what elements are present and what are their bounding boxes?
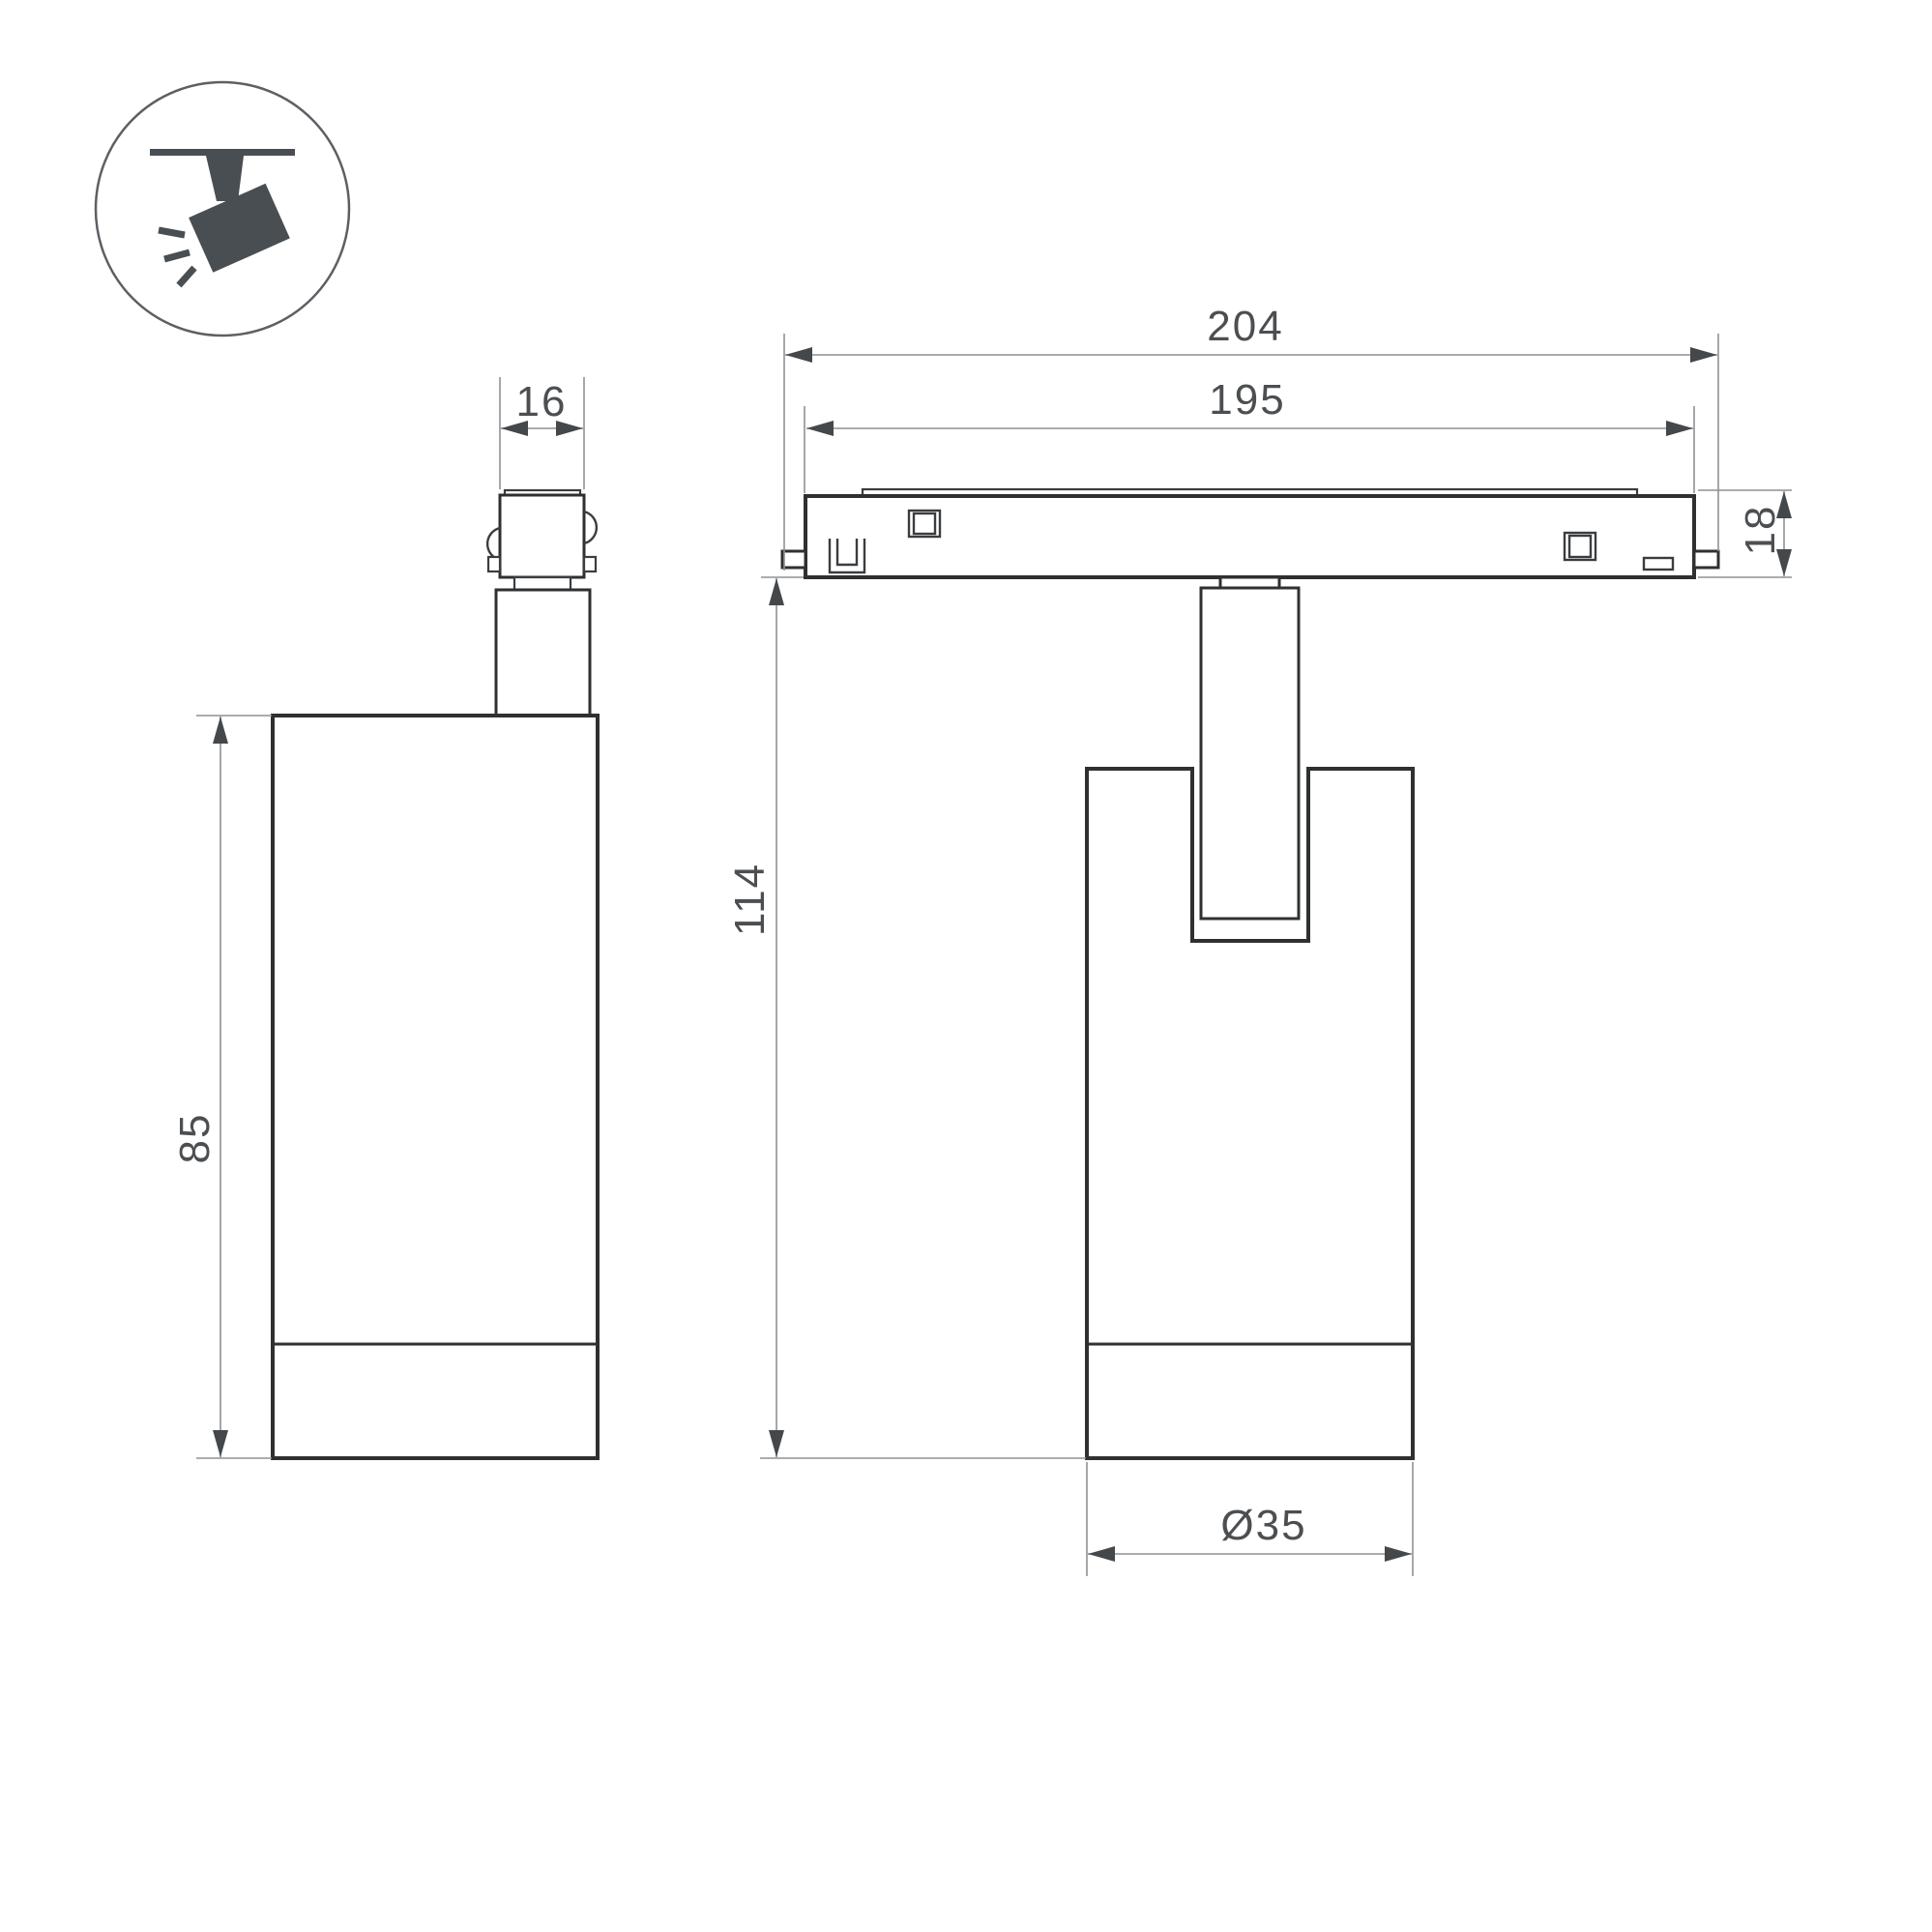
arrowhead-left [785, 347, 812, 363]
side-adapter-left-tab [488, 557, 500, 571]
arrowhead-right [1385, 1546, 1412, 1562]
arrowhead-bottom [769, 1430, 784, 1457]
dimension-value: 16 [516, 378, 568, 425]
track-magnet-plate [1644, 558, 1673, 570]
icon-light-ray [159, 230, 185, 235]
icon-ceiling-bar [150, 149, 295, 156]
dimension-value: 114 [726, 863, 774, 936]
arrowhead-left [1088, 1546, 1115, 1562]
dimension-drawing: 204 195 16 85 114 [0, 0, 1932, 1932]
arrowhead-bottom [213, 1430, 228, 1457]
arrowhead-right [1666, 421, 1693, 436]
side-track-adapter [500, 495, 584, 577]
dimension-body-diameter: Ø35 [1087, 1462, 1413, 1576]
track-spotlight-icon [96, 82, 349, 336]
swivel-stem [1201, 588, 1299, 919]
dimension-body-height: 85 [171, 716, 272, 1458]
stem-collar [1220, 577, 1279, 588]
arrowhead-top [769, 578, 784, 605]
side-adapter-step [514, 577, 571, 590]
dimension-value: 85 [171, 1113, 219, 1164]
side-view [273, 490, 598, 1458]
arrowhead-top [213, 717, 228, 744]
drawing-canvas: 204 195 16 85 114 [0, 0, 1932, 1932]
dimension-fixture-height: 114 [726, 577, 1086, 1458]
dimension-track-length-inner: 195 [805, 376, 1694, 493]
arrowhead-left [806, 421, 834, 436]
track-left-end-tab [782, 551, 805, 568]
front-view [782, 489, 1718, 1458]
dimension-value: 195 [1209, 376, 1285, 424]
side-adapter-right-tab [584, 557, 596, 571]
side-swivel-arm [496, 590, 590, 716]
dimension-value: 18 [1737, 505, 1784, 556]
side-lamp-body [273, 716, 598, 1458]
side-adapter-right-clip [584, 512, 597, 543]
dimension-value: 204 [1207, 303, 1283, 350]
dimension-adapter-width: 16 [500, 377, 584, 489]
track-right-end-tab [1694, 551, 1718, 568]
dimension-value: Ø35 [1220, 1502, 1306, 1549]
arrowhead-right [1690, 347, 1717, 363]
side-adapter-left-clip [487, 528, 500, 560]
